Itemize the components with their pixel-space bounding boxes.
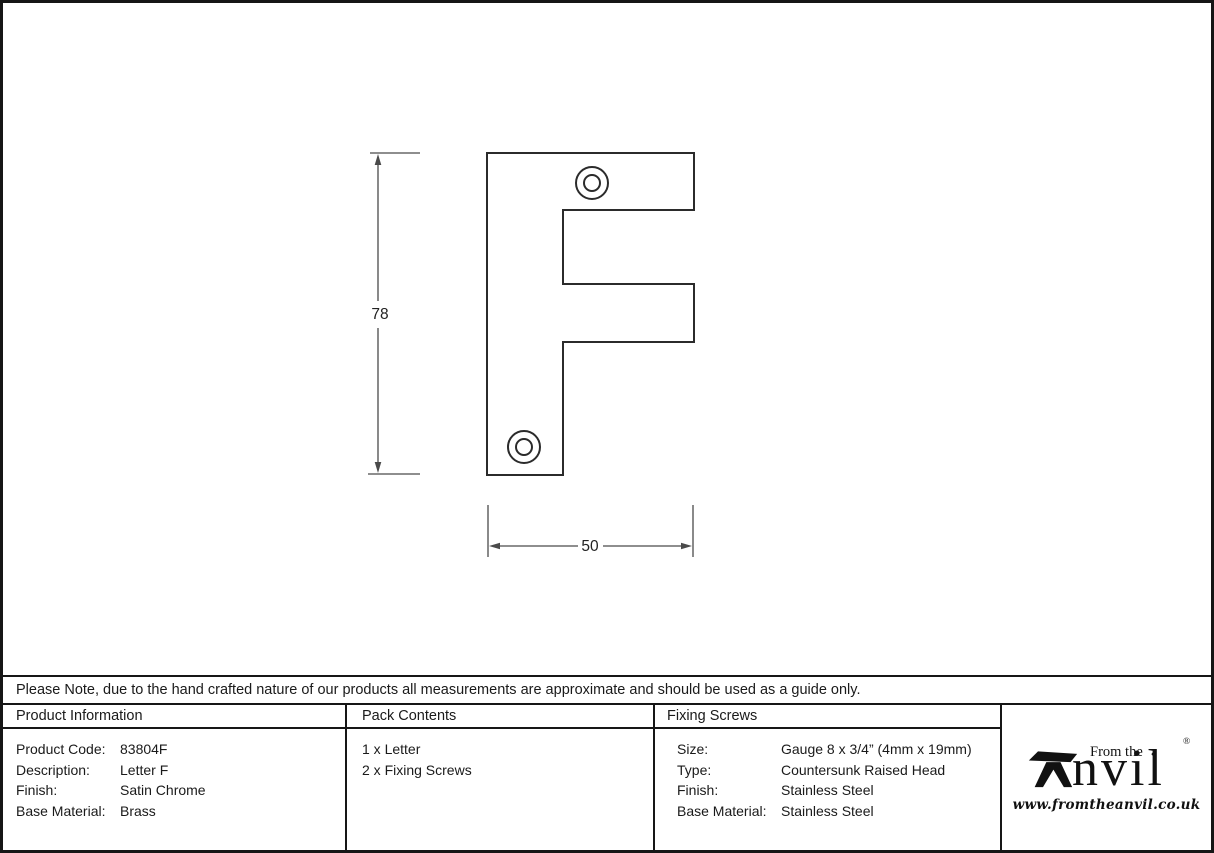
arrow-down-icon [375, 462, 382, 473]
fixing-screws-section: Fixing Screws Size: Gauge 8 x 3/4” (4mm … [653, 705, 1000, 850]
product-information-body: Product Code: 83804F Description: Letter… [3, 729, 345, 821]
anvil-beam [1029, 751, 1077, 762]
screw-base-material-row: Base Material: Stainless Steel [677, 801, 1000, 822]
screw-base-material-value: Stainless Steel [781, 801, 874, 822]
registered-mark: ® [1183, 737, 1190, 747]
pack-item: 1 x Letter [362, 739, 653, 760]
base-material-row: Base Material: Brass [16, 801, 345, 822]
screw-type-value: Countersunk Raised Head [781, 760, 945, 781]
screw-base-material-label: Base Material: [677, 801, 781, 822]
letter-f-outline [487, 153, 694, 475]
finish-value: Satin Chrome [120, 780, 206, 801]
fixing-screws-header: Fixing Screws [655, 705, 1000, 729]
product-code-value: 83804F [120, 739, 167, 760]
product-information-header: Product Information [3, 705, 345, 729]
screw-hole-bottom-inner [516, 439, 532, 455]
arrow-left-icon [489, 543, 500, 550]
finish-row: Finish: Satin Chrome [16, 780, 345, 801]
spec-sheet: 78 50 Please Note, due to the hand craft… [0, 0, 1214, 853]
product-code-row: Product Code: 83804F [16, 739, 345, 760]
product-information-section: Product Information Product Code: 83804F… [3, 705, 345, 850]
description-value: Letter F [120, 760, 168, 781]
arrow-up-icon [375, 154, 382, 165]
pack-contents-section: Pack Contents 1 x Letter 2 x Fixing Scre… [345, 705, 653, 850]
letter-f-drawing: 78 50 [3, 3, 1211, 675]
screw-size-row: Size: Gauge 8 x 3/4” (4mm x 19mm) [677, 739, 1000, 760]
screw-hole-top-outer [576, 167, 608, 199]
fixing-screws-body: Size: Gauge 8 x 3/4” (4mm x 19mm) Type: … [655, 729, 1000, 821]
screw-type-label: Type: [677, 760, 781, 781]
description-label: Description: [16, 760, 120, 781]
brand-logo-cell: From the ♦ ® nvil www.fromtheanvil.co.uk [1000, 705, 1211, 850]
screw-finish-row: Finish: Stainless Steel [677, 780, 1000, 801]
finish-label: Finish: [16, 780, 120, 801]
screw-hole-bottom-outer [508, 431, 540, 463]
base-material-label: Base Material: [16, 801, 120, 822]
screw-finish-value: Stainless Steel [781, 780, 874, 801]
arrow-right-icon [681, 543, 692, 550]
height-dimension-label: 78 [371, 306, 388, 323]
screw-type-row: Type: Countersunk Raised Head [677, 760, 1000, 781]
note-text: Please Note, due to the hand crafted nat… [16, 682, 860, 698]
brand-name-text: nvil [1072, 746, 1165, 792]
pack-contents-header: Pack Contents [347, 705, 653, 729]
screw-size-value: Gauge 8 x 3/4” (4mm x 19mm) [781, 739, 972, 760]
anvil-legs [1035, 762, 1073, 787]
screw-size-label: Size: [677, 739, 781, 760]
product-code-label: Product Code: [16, 739, 120, 760]
anvil-logo: From the ♦ ® nvil www.fromtheanvil.co.uk [1002, 705, 1211, 850]
screw-finish-label: Finish: [677, 780, 781, 801]
base-material-value: Brass [120, 801, 156, 822]
screw-hole-top-inner [584, 175, 600, 191]
pack-contents-body: 1 x Letter 2 x Fixing Screws [347, 729, 653, 780]
width-dimension-label: 50 [581, 538, 599, 555]
description-row: Description: Letter F [16, 760, 345, 781]
anvil-icon [1028, 746, 1078, 790]
note-row: Please Note, due to the hand crafted nat… [3, 675, 1211, 705]
pack-item: 2 x Fixing Screws [362, 760, 653, 781]
brand-url-text: www.fromtheanvil.co.uk [1002, 797, 1211, 813]
info-table: Product Information Product Code: 83804F… [3, 705, 1211, 850]
